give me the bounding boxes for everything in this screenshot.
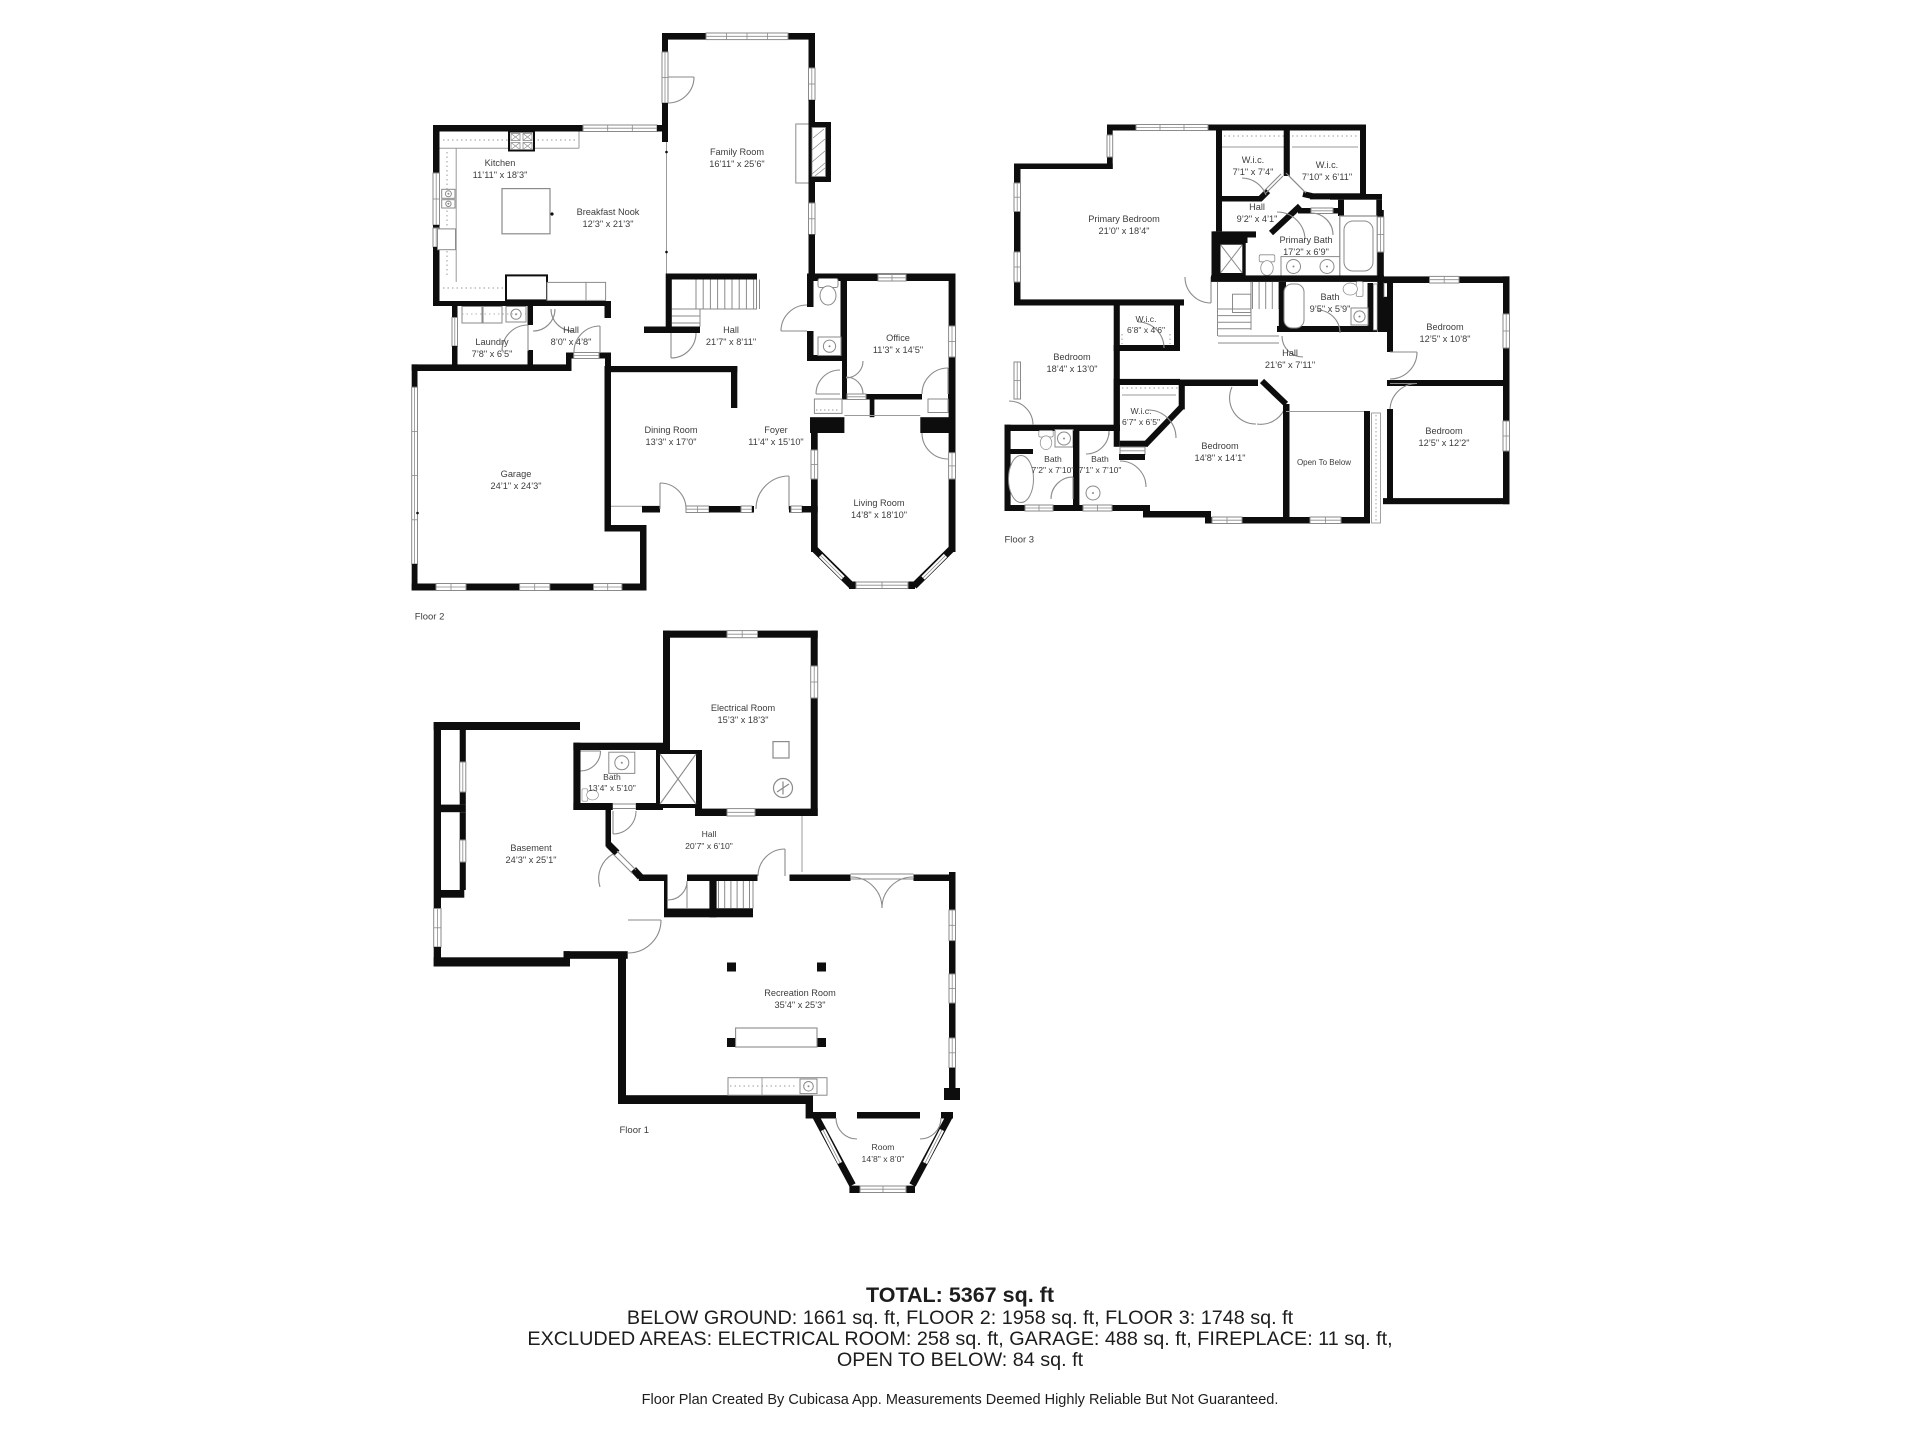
svg-text:7’1" x 7’4": 7’1" x 7’4"	[1233, 167, 1274, 177]
svg-text:Bedroom: Bedroom	[1201, 441, 1239, 451]
svg-text:7’10" x 6’11": 7’10" x 6’11"	[1302, 172, 1352, 182]
svg-text:11’3" x 14’5": 11’3" x 14’5"	[873, 345, 923, 355]
svg-text:6’7" x 6’5": 6’7" x 6’5"	[1122, 417, 1160, 427]
svg-text:8’0" x 4’8": 8’0" x 4’8"	[551, 337, 592, 347]
svg-text:Basement: Basement	[510, 843, 552, 853]
svg-text:24’1" x 24’3": 24’1" x 24’3"	[491, 481, 542, 491]
svg-text:Hall: Hall	[1249, 202, 1265, 212]
svg-text:Garage: Garage	[501, 469, 532, 479]
svg-text:18’4" x 13’0": 18’4" x 13’0"	[1047, 364, 1098, 374]
svg-text:12’5" x 10’8": 12’5" x 10’8"	[1420, 334, 1471, 344]
svg-text:17’2" x 6’9": 17’2" x 6’9"	[1283, 247, 1329, 257]
svg-text:Bath: Bath	[603, 772, 621, 782]
svg-text:9’2" x 4’1": 9’2" x 4’1"	[1237, 214, 1278, 224]
svg-text:14’8" x 18’10": 14’8" x 18’10"	[851, 510, 907, 520]
svg-text:TOTAL: 5367 sq. ft: TOTAL: 5367 sq. ft	[866, 1283, 1054, 1307]
svg-text:Open To Below: Open To Below	[1297, 458, 1351, 467]
svg-text:Floor 2: Floor 2	[415, 612, 445, 623]
svg-text:11’4" x 15’10": 11’4" x 15’10"	[748, 437, 803, 447]
svg-text:21’6" x 7’11": 21’6" x 7’11"	[1265, 360, 1315, 370]
svg-text:Bath: Bath	[1321, 292, 1340, 302]
svg-text:OPEN TO BELOW: 84 sq. ft: OPEN TO BELOW: 84 sq. ft	[837, 1349, 1084, 1371]
svg-text:16’11" x 25’6": 16’11" x 25’6"	[709, 159, 764, 169]
svg-text:21’0" x 18’4": 21’0" x 18’4"	[1099, 226, 1150, 236]
svg-text:Foyer: Foyer	[764, 425, 788, 435]
svg-text:Hall: Hall	[723, 325, 739, 335]
svg-text:Living Room: Living Room	[853, 498, 904, 508]
svg-text:Office: Office	[886, 333, 910, 343]
svg-text:14’8" x 14’1": 14’8" x 14’1"	[1195, 453, 1246, 463]
svg-text:W.i.c.: W.i.c.	[1316, 160, 1338, 170]
svg-text:Bedroom: Bedroom	[1425, 426, 1463, 436]
svg-text:W.i.c.: W.i.c.	[1135, 314, 1156, 324]
svg-text:Family Room: Family Room	[710, 147, 764, 157]
svg-text:Dining Room: Dining Room	[644, 425, 697, 435]
svg-text:13’3" x 17’0": 13’3" x 17’0"	[646, 437, 697, 447]
svg-text:EXCLUDED AREAS: ELECTRICAL ROO: EXCLUDED AREAS: ELECTRICAL ROOM: 258 sq.…	[527, 1328, 1392, 1350]
svg-text:24’3" x 25’1": 24’3" x 25’1"	[506, 855, 557, 865]
svg-text:Primary Bath: Primary Bath	[1279, 235, 1332, 245]
svg-text:15’3" x 18’3": 15’3" x 18’3"	[718, 715, 769, 725]
svg-text:35’4" x 25’3": 35’4" x 25’3"	[775, 1000, 826, 1010]
svg-text:11’11" x 18’3": 11’11" x 18’3"	[473, 170, 528, 180]
svg-text:7’8" x 6’5": 7’8" x 6’5"	[472, 349, 513, 359]
svg-text:Breakfast Nook: Breakfast Nook	[577, 207, 640, 217]
svg-text:Hall: Hall	[702, 829, 717, 839]
svg-text:Recreation Room: Recreation Room	[764, 988, 836, 998]
svg-text:7’1" x 7’10": 7’1" x 7’10"	[1079, 465, 1122, 475]
svg-text:W.i.c.: W.i.c.	[1130, 406, 1151, 416]
svg-text:6’8" x 4’6": 6’8" x 4’6"	[1127, 325, 1165, 335]
svg-text:21’7" x 8’11": 21’7" x 8’11"	[706, 337, 756, 347]
svg-text:7’2" x 7’10": 7’2" x 7’10"	[1032, 465, 1075, 475]
svg-text:9’5" x 5’9": 9’5" x 5’9"	[1310, 304, 1351, 314]
svg-text:Room: Room	[872, 1142, 895, 1152]
svg-text:Bath: Bath	[1044, 454, 1062, 464]
svg-text:Kitchen: Kitchen	[485, 158, 516, 168]
svg-text:Bedroom: Bedroom	[1053, 352, 1091, 362]
svg-text:12’5" x 12’2": 12’5" x 12’2"	[1419, 438, 1470, 448]
svg-text:Primary Bedroom: Primary Bedroom	[1088, 214, 1160, 224]
svg-text:12’3" x 21’3": 12’3" x 21’3"	[583, 219, 634, 229]
svg-text:Hall: Hall	[1282, 348, 1298, 358]
svg-text:13’4" x 5’10": 13’4" x 5’10"	[588, 783, 636, 793]
svg-text:Bath: Bath	[1091, 454, 1109, 464]
svg-text:20’7" x 6’10": 20’7" x 6’10"	[685, 841, 733, 851]
svg-text:BELOW GROUND: 1661 sq. ft, FLO: BELOW GROUND: 1661 sq. ft, FLOOR 2: 1958…	[627, 1307, 1294, 1329]
svg-text:Laundry: Laundry	[475, 337, 509, 347]
svg-text:14’8" x 8’0": 14’8" x 8’0"	[862, 1154, 905, 1164]
svg-text:Bedroom: Bedroom	[1426, 322, 1464, 332]
svg-text:W.i.c.: W.i.c.	[1242, 155, 1264, 165]
svg-text:Floor 1: Floor 1	[620, 1125, 650, 1136]
svg-text:Hall: Hall	[563, 325, 579, 335]
svg-text:Floor Plan Created By Cubicasa: Floor Plan Created By Cubicasa App. Meas…	[642, 1392, 1279, 1408]
svg-text:Floor 3: Floor 3	[1005, 535, 1035, 546]
svg-text:Electrical Room: Electrical Room	[711, 703, 776, 713]
